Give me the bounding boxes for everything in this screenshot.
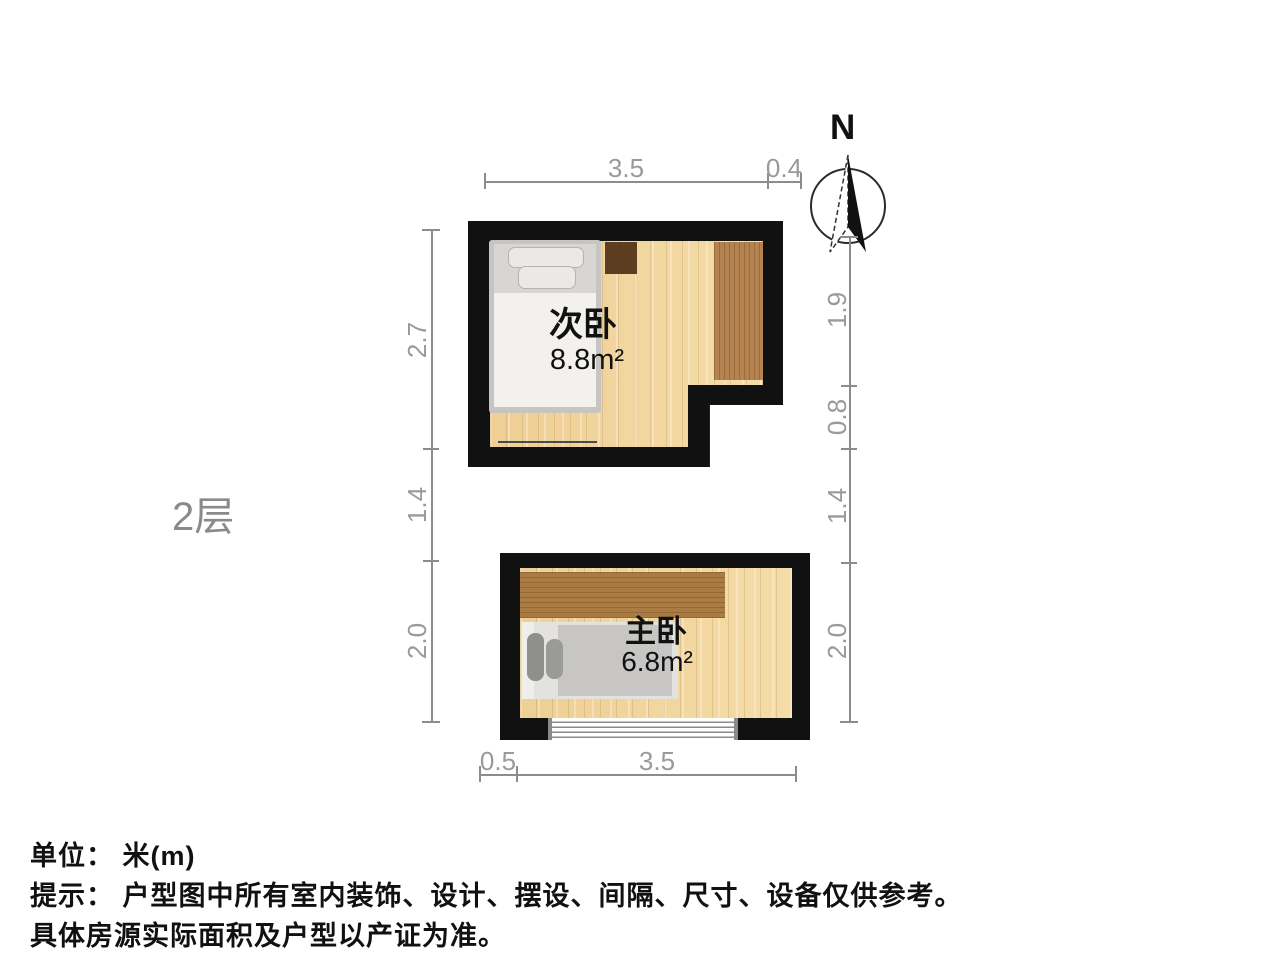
room-name: 次卧	[523, 297, 643, 346]
tick-mark	[795, 766, 797, 782]
pillow	[518, 266, 576, 289]
tick-mark	[422, 721, 440, 723]
unit-note: 单位： 米(m)	[30, 834, 196, 873]
disclaimer-line-2: 具体房源实际面积及户型以产证为准。	[30, 914, 506, 953]
north-arrow-icon	[818, 148, 878, 260]
cabinet	[605, 242, 637, 274]
dimension-label: 0.5	[463, 746, 533, 776]
pillow	[546, 639, 563, 679]
dimension-label: 1.4	[402, 470, 432, 540]
room-area: 8.8m²	[522, 344, 652, 377]
dimension-label: 0.4	[749, 153, 819, 183]
room-area: 6.8m²	[592, 646, 722, 678]
room-name: 主卧	[596, 606, 716, 651]
dimension-label: 3.5	[622, 746, 692, 776]
tick-mark	[423, 448, 439, 450]
floor-plan: 2层 N 3.5 0.4 0.5 3.5 2.7 1.4 2.0 1.9 0.8…	[0, 0, 1280, 960]
tick-mark	[841, 562, 857, 564]
dimension-label: 1.9	[822, 275, 852, 345]
compass-north-label: N	[830, 108, 855, 148]
tick-mark	[423, 560, 439, 562]
dimension-label: 0.8	[822, 382, 852, 452]
tick-mark	[840, 721, 858, 723]
pillow	[527, 633, 544, 681]
dimension-label: 1.4	[822, 471, 852, 541]
floor-number-label: 2层	[172, 484, 234, 542]
wardrobe	[714, 242, 763, 380]
tick-mark	[422, 229, 440, 231]
dimension-label: 2.0	[402, 606, 432, 676]
floor-threshold-line	[498, 441, 597, 443]
dimension-label: 3.5	[591, 153, 661, 183]
disclaimer-line-1: 提示： 户型图中所有室内装饰、设计、摆设、间隔、尺寸、设备仅供参考。	[30, 874, 963, 913]
tick-mark	[484, 173, 486, 189]
dimension-label: 2.0	[822, 606, 852, 676]
dimension-label: 2.7	[402, 305, 432, 375]
window	[548, 718, 738, 740]
tick-mark	[840, 236, 858, 238]
pillow	[508, 247, 584, 268]
